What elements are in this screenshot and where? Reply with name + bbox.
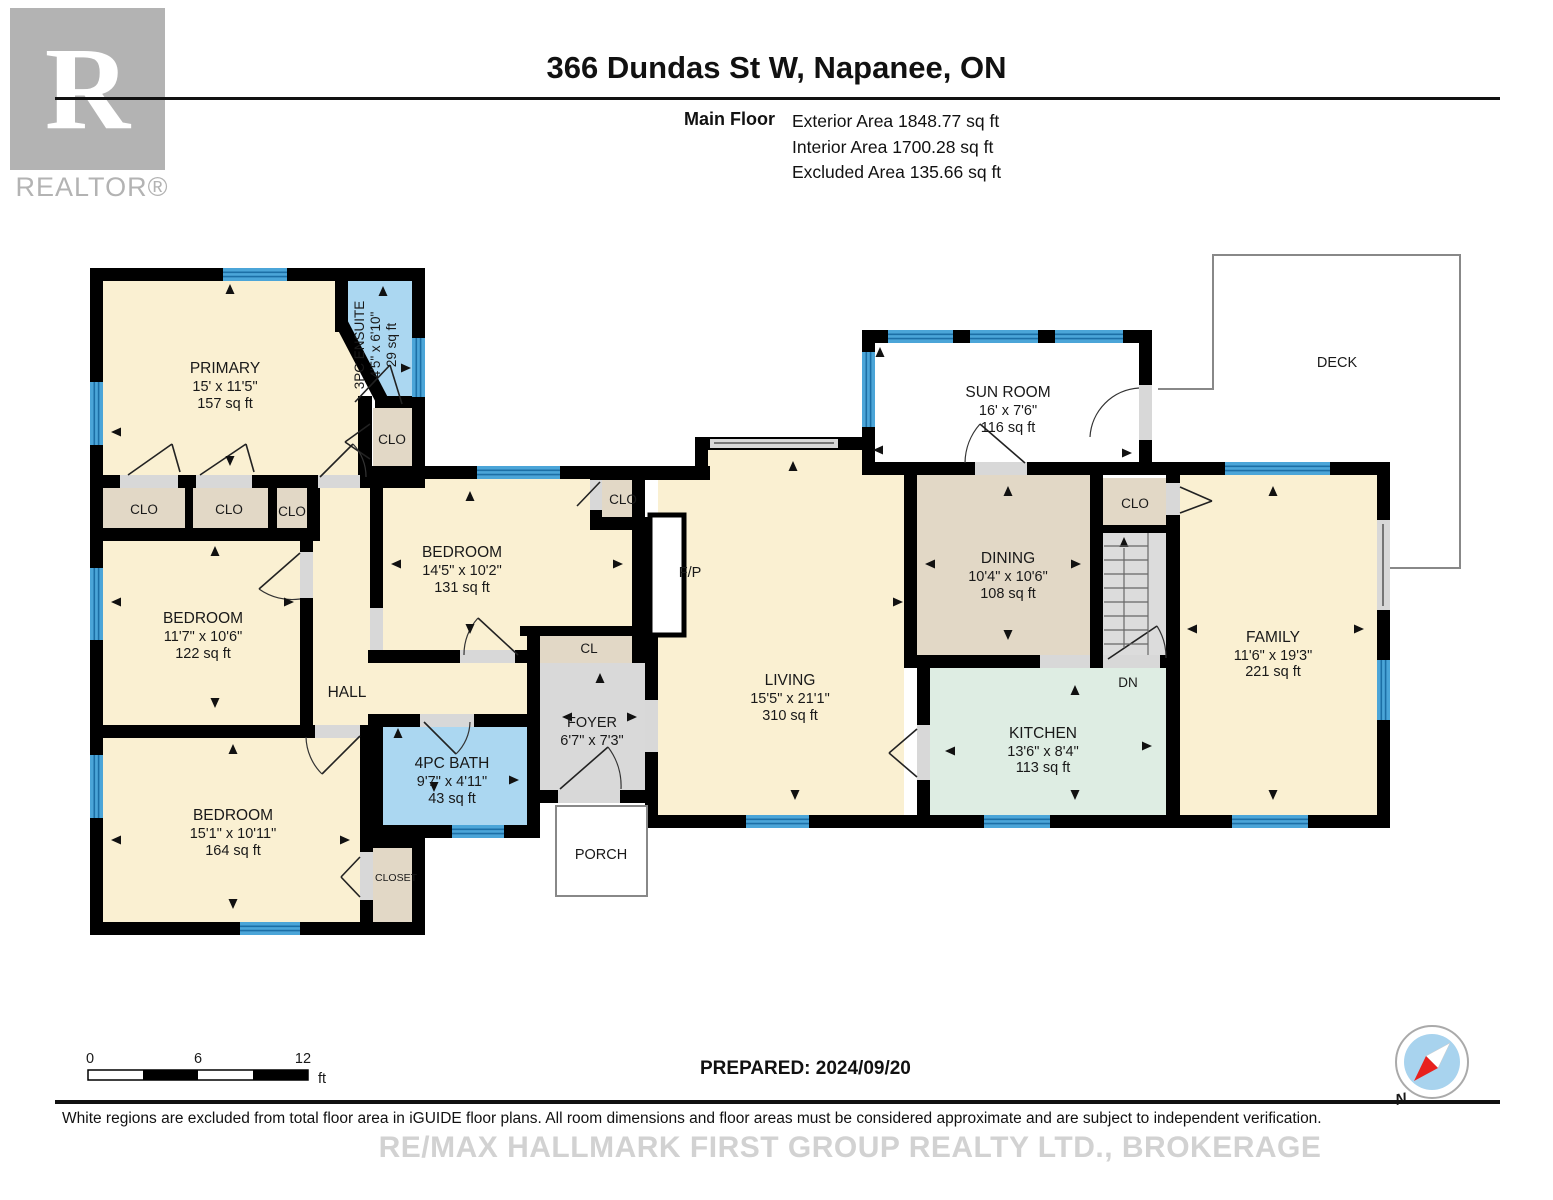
room-area: 310 sq ft (762, 708, 818, 724)
room-dims: 16' x 7'6" (979, 403, 1037, 419)
fireplace-label: F/P (679, 565, 702, 581)
room-area: 108 sq ft (980, 586, 1036, 602)
room-name: BEDROOM (422, 544, 502, 561)
room-name: KITCHEN (1009, 725, 1077, 742)
scale-unit: ft (318, 1071, 326, 1087)
room-dims: 14'5" x 10'2" (422, 563, 502, 579)
scale-tick-6: 6 (194, 1051, 202, 1067)
room-dims: 13'6" x 8'4" (1007, 744, 1078, 760)
room-dims: 15'1" x 10'11" (190, 826, 277, 842)
room-dims: 10'4" x 10'6" (968, 569, 1048, 585)
scale-tick-12: 12 (295, 1051, 311, 1067)
disclaimer-text: White regions are excluded from total fl… (62, 1110, 1322, 1128)
compass-icon: N (1394, 1026, 1468, 1109)
room-name: FOYER (567, 715, 617, 731)
room-name: BEDROOM (193, 807, 273, 824)
closet-label: CLO (278, 504, 306, 519)
room-area: 164 sq ft (205, 843, 261, 859)
closet-label: CL (580, 641, 598, 656)
room-area: 221 sq ft (1245, 664, 1301, 680)
room-area: 116 sq ft (981, 420, 1036, 436)
room-dims: 15' x 11'5" (192, 379, 257, 395)
room-area: 29 sq ft (384, 323, 399, 368)
room-dims: 9'7" x 4'11" (417, 774, 487, 790)
prepared-date: PREPARED: 2024/09/20 (700, 1058, 911, 1080)
room-dims: 11'7" x 10'6" (164, 629, 242, 645)
room-area: 122 sq ft (175, 646, 231, 662)
closet-label: CLOSET (375, 872, 418, 884)
deck-label: DECK (1317, 355, 1358, 371)
porch-label: PORCH (575, 847, 627, 863)
brokerage-watermark: RE/MAX HALLMARK FIRST GROUP REALTY LTD.,… (200, 1131, 1500, 1165)
room-name: 3PC ENSUITE (352, 301, 367, 390)
closet-label: CLO (1121, 496, 1149, 511)
closet-label: CLO (609, 492, 637, 507)
room-name: DINING (981, 550, 1035, 567)
scale-bar: 0 6 12 ft (86, 1051, 326, 1087)
room-name: SUN ROOM (965, 384, 1050, 401)
room-area: 113 sq ft (1016, 760, 1071, 776)
stairs-down-label: DN (1118, 675, 1138, 690)
room-area: 157 sq ft (197, 396, 253, 412)
room-name: PRIMARY (190, 360, 260, 377)
room-name: LIVING (765, 672, 816, 689)
hall-label: HALL (328, 684, 367, 701)
room-name: 4PC BATH (415, 755, 490, 772)
room-area: 131 sq ft (434, 580, 490, 596)
room-name: FAMILY (1246, 629, 1300, 646)
scale-tick-0: 0 (86, 1051, 94, 1067)
room-dims: 11'6" x 19'3" (1234, 648, 1312, 664)
footer-divider (55, 1100, 1500, 1104)
closet-label: CLO (378, 432, 406, 447)
closet-label: CLO (130, 502, 158, 517)
closet-label: CLO (215, 502, 243, 517)
room-dims: 4'5" x 6'10" (368, 312, 383, 379)
floor-plan-drawing: PRIMARY 15' x 11'5" 157 sq ft 3PC ENSUIT… (0, 0, 1553, 1200)
room-area: 43 sq ft (428, 791, 476, 807)
room-dims: 15'5" x 21'1" (750, 691, 830, 707)
room-name: BEDROOM (163, 610, 243, 627)
room-dims: 6'7" x 7'3" (560, 733, 623, 749)
floor-plan-page: R REALTOR® 366 Dundas St W, Napanee, ON … (0, 0, 1553, 1200)
